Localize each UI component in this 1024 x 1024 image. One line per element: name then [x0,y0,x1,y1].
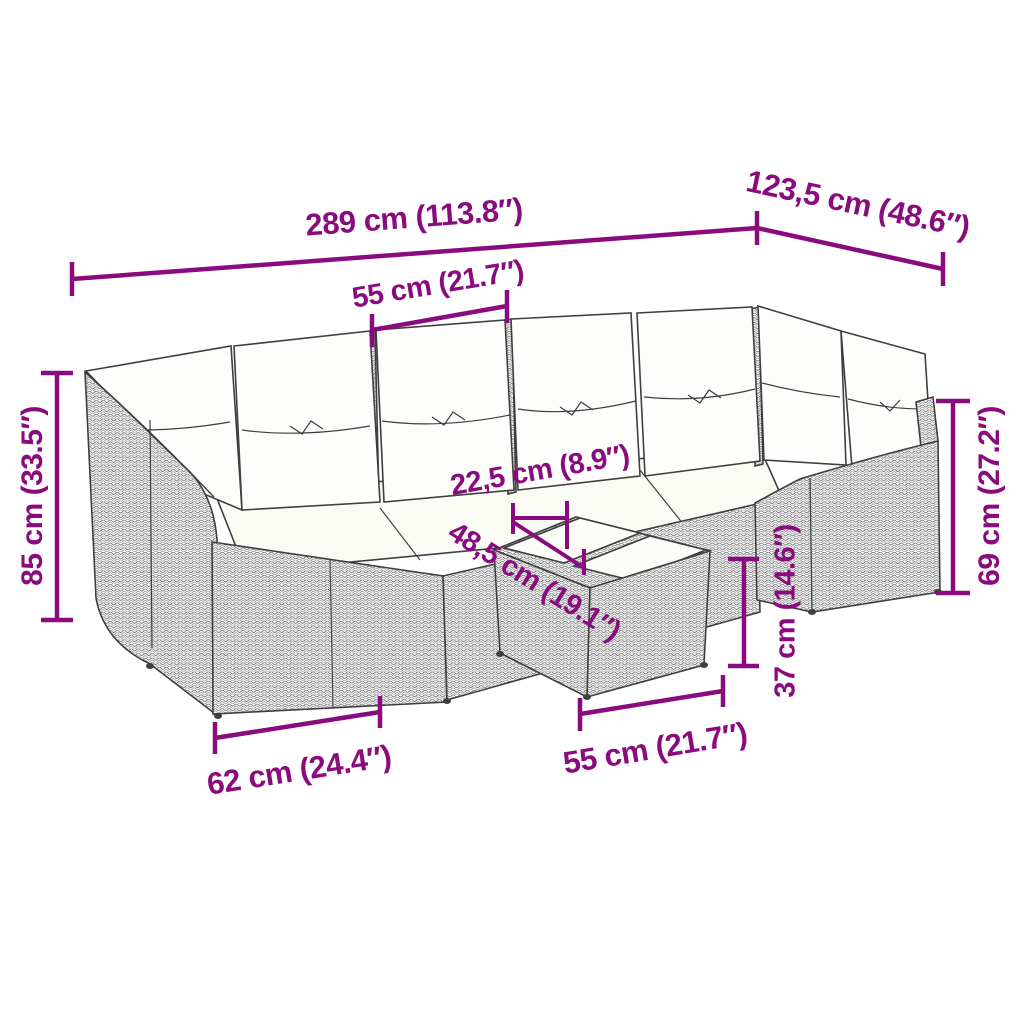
dim-back-height-label: 69 cm (27.2″) [975,406,1005,586]
dim-total-height-label: 85 cm (33.5″) [18,406,48,586]
dim-overall-depth-line [757,228,943,286]
product-dimension-diagram: 289 cm (113.8″) 123,5 cm (48.6″) 55 cm (… [0,0,1024,1024]
sofa-illustration [0,0,1024,1024]
dim-back-height-line [936,401,970,593]
dim-ottoman-height-label: 37 cm (14.6″) [772,524,801,697]
front-base-left [212,542,447,714]
